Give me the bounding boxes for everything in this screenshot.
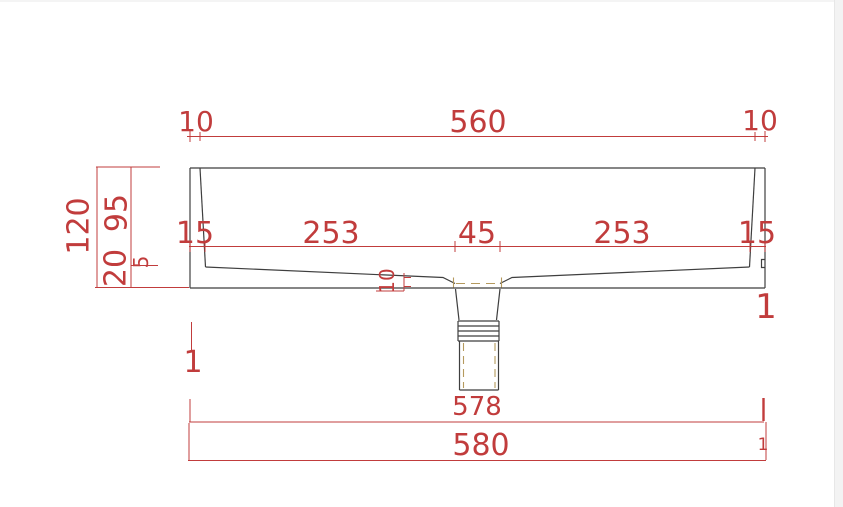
cad-drawing: 10 560 10 120 95 5 20 15 253 45 253 15 1…	[0, 0, 843, 507]
pipe-body-box	[460, 341, 499, 390]
dim-label-recess-depth: 10	[375, 268, 399, 293]
basin-inner-bottom-left	[206, 267, 456, 284]
dim-mark-left: 1	[183, 345, 202, 380]
dim-label-inner-depth: 95	[100, 194, 135, 232]
dim-label-top-right-rim: 10	[742, 104, 778, 137]
pipe-neck	[456, 289, 501, 320]
dim-label-top-left-rim: 10	[178, 105, 214, 138]
dimension-labels: 10 560 10 120 95 5 20 15 253 45 253 15 1…	[62, 104, 778, 463]
dim-mark-right: 1	[755, 287, 777, 327]
drain-pipe-outline	[456, 289, 501, 390]
drawing-canvas: 10 560 10 120 95 5 20 15 253 45 253 15 1…	[0, 0, 843, 507]
dim-label-wall-right: 15	[738, 216, 776, 251]
dim-label-wall-left: 15	[176, 216, 214, 251]
page-edge-right	[834, 0, 843, 507]
dim-mark-bottom-right: 1	[758, 435, 769, 455]
dim-label-span-right: 253	[593, 216, 650, 251]
basin-inner-bottom-right	[500, 267, 750, 284]
dim-label-bottom-outer-width: 580	[452, 428, 509, 463]
dim-label-total-height: 120	[62, 197, 97, 254]
dim-label-bottom-inner-width: 578	[452, 392, 502, 422]
dim-label-span-left: 253	[302, 216, 359, 251]
dim-label-top-width: 560	[449, 105, 506, 140]
dimension-lines	[95, 131, 768, 461]
hidden-lines	[454, 278, 502, 389]
page-edge-top	[0, 0, 843, 2]
dim-label-base-thickness: 20	[99, 249, 134, 287]
dim-label-drain-width: 45	[458, 216, 496, 251]
pipe-thread-ridges	[458, 321, 499, 341]
